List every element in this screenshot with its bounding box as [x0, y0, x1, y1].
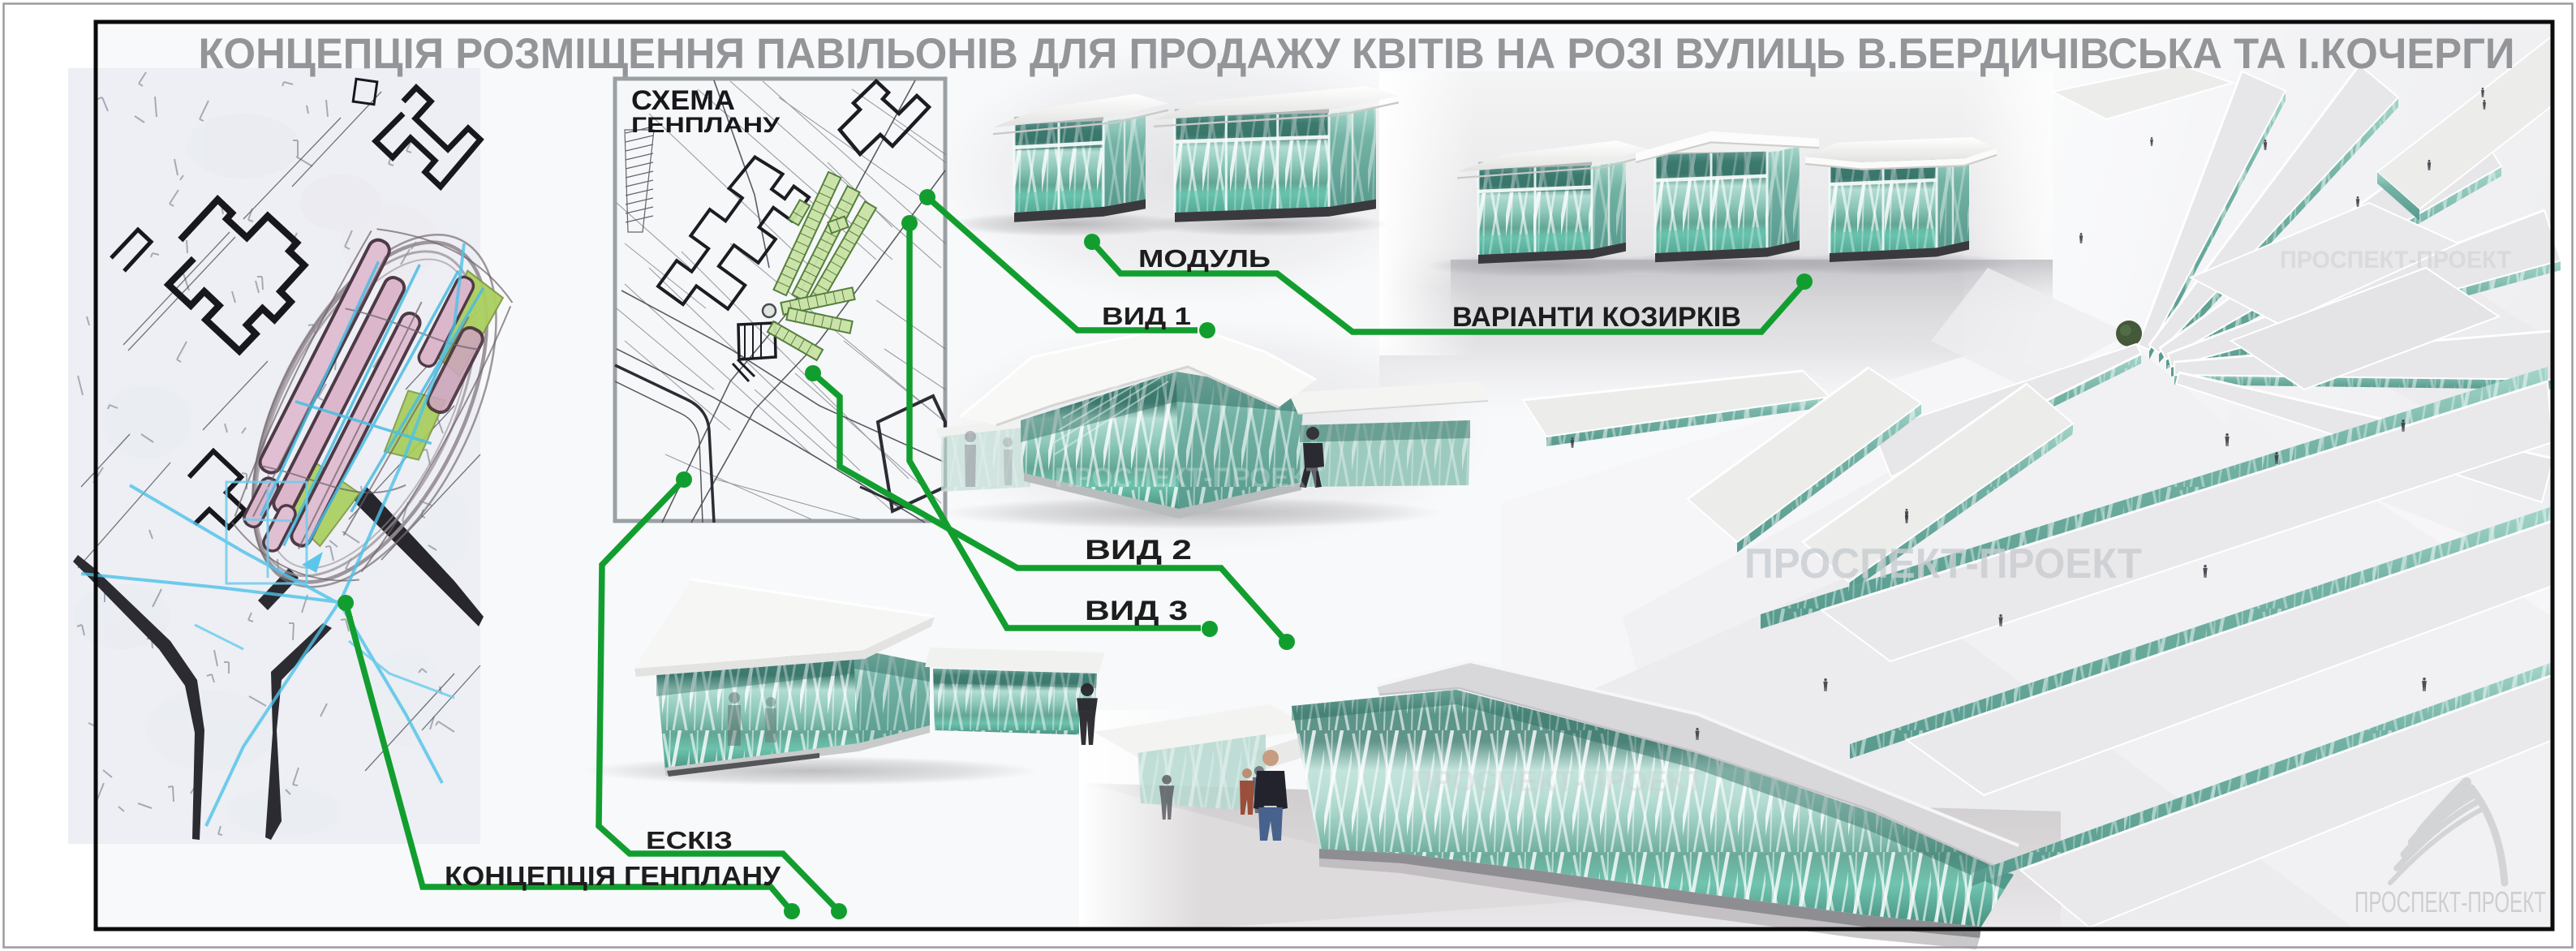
- svg-text:ЕСКІЗ: ЕСКІЗ: [646, 826, 733, 854]
- svg-text:ВИД 3: ВИД 3: [1085, 596, 1188, 626]
- svg-text:МОДУЛЬ: МОДУЛЬ: [1138, 244, 1271, 273]
- svg-text:ВИД 1: ВИД 1: [1102, 302, 1191, 330]
- svg-text:ВАРІАНТИ КОЗИРКІВ: ВАРІАНТИ КОЗИРКІВ: [1452, 302, 1741, 333]
- svg-text:СХЕМА: СХЕМА: [631, 85, 735, 116]
- svg-text:ПРОСПЕКТ-ПРОЕКТ: ПРОСПЕКТ-ПРОЕКТ: [1744, 540, 2142, 587]
- svg-text:ВИД 2: ВИД 2: [1085, 535, 1192, 566]
- svg-text:ПРОСПЕКТ-ПРОЕКТ: ПРОСПЕКТ-ПРОЕКТ: [2355, 885, 2546, 919]
- svg-text:КОНЦЕПЦІЯ РОЗМІЩЕННЯ ПАВІЛЬОНІ: КОНЦЕПЦІЯ РОЗМІЩЕННЯ ПАВІЛЬОНІВ ДЛЯ ПРОД…: [199, 30, 2515, 78]
- svg-text:ГЕНПЛАНУ: ГЕНПЛАНУ: [631, 113, 781, 137]
- svg-text:ПРОСПЕКТ-ПРОЕКТ: ПРОСПЕКТ-ПРОЕКТ: [1055, 463, 1322, 493]
- svg-text:КОНЦЕПЦІЯ ГЕНПЛАНУ: КОНЦЕПЦІЯ ГЕНПЛАНУ: [445, 861, 781, 891]
- svg-text:ПРОСПЕКТ-ПРОЕКТ: ПРОСПЕКТ-ПРОЕКТ: [1412, 764, 1704, 798]
- svg-text:ПРОСПЕКТ-ПРОЕКТ: ПРОСПЕКТ-ПРОЕКТ: [2280, 247, 2511, 273]
